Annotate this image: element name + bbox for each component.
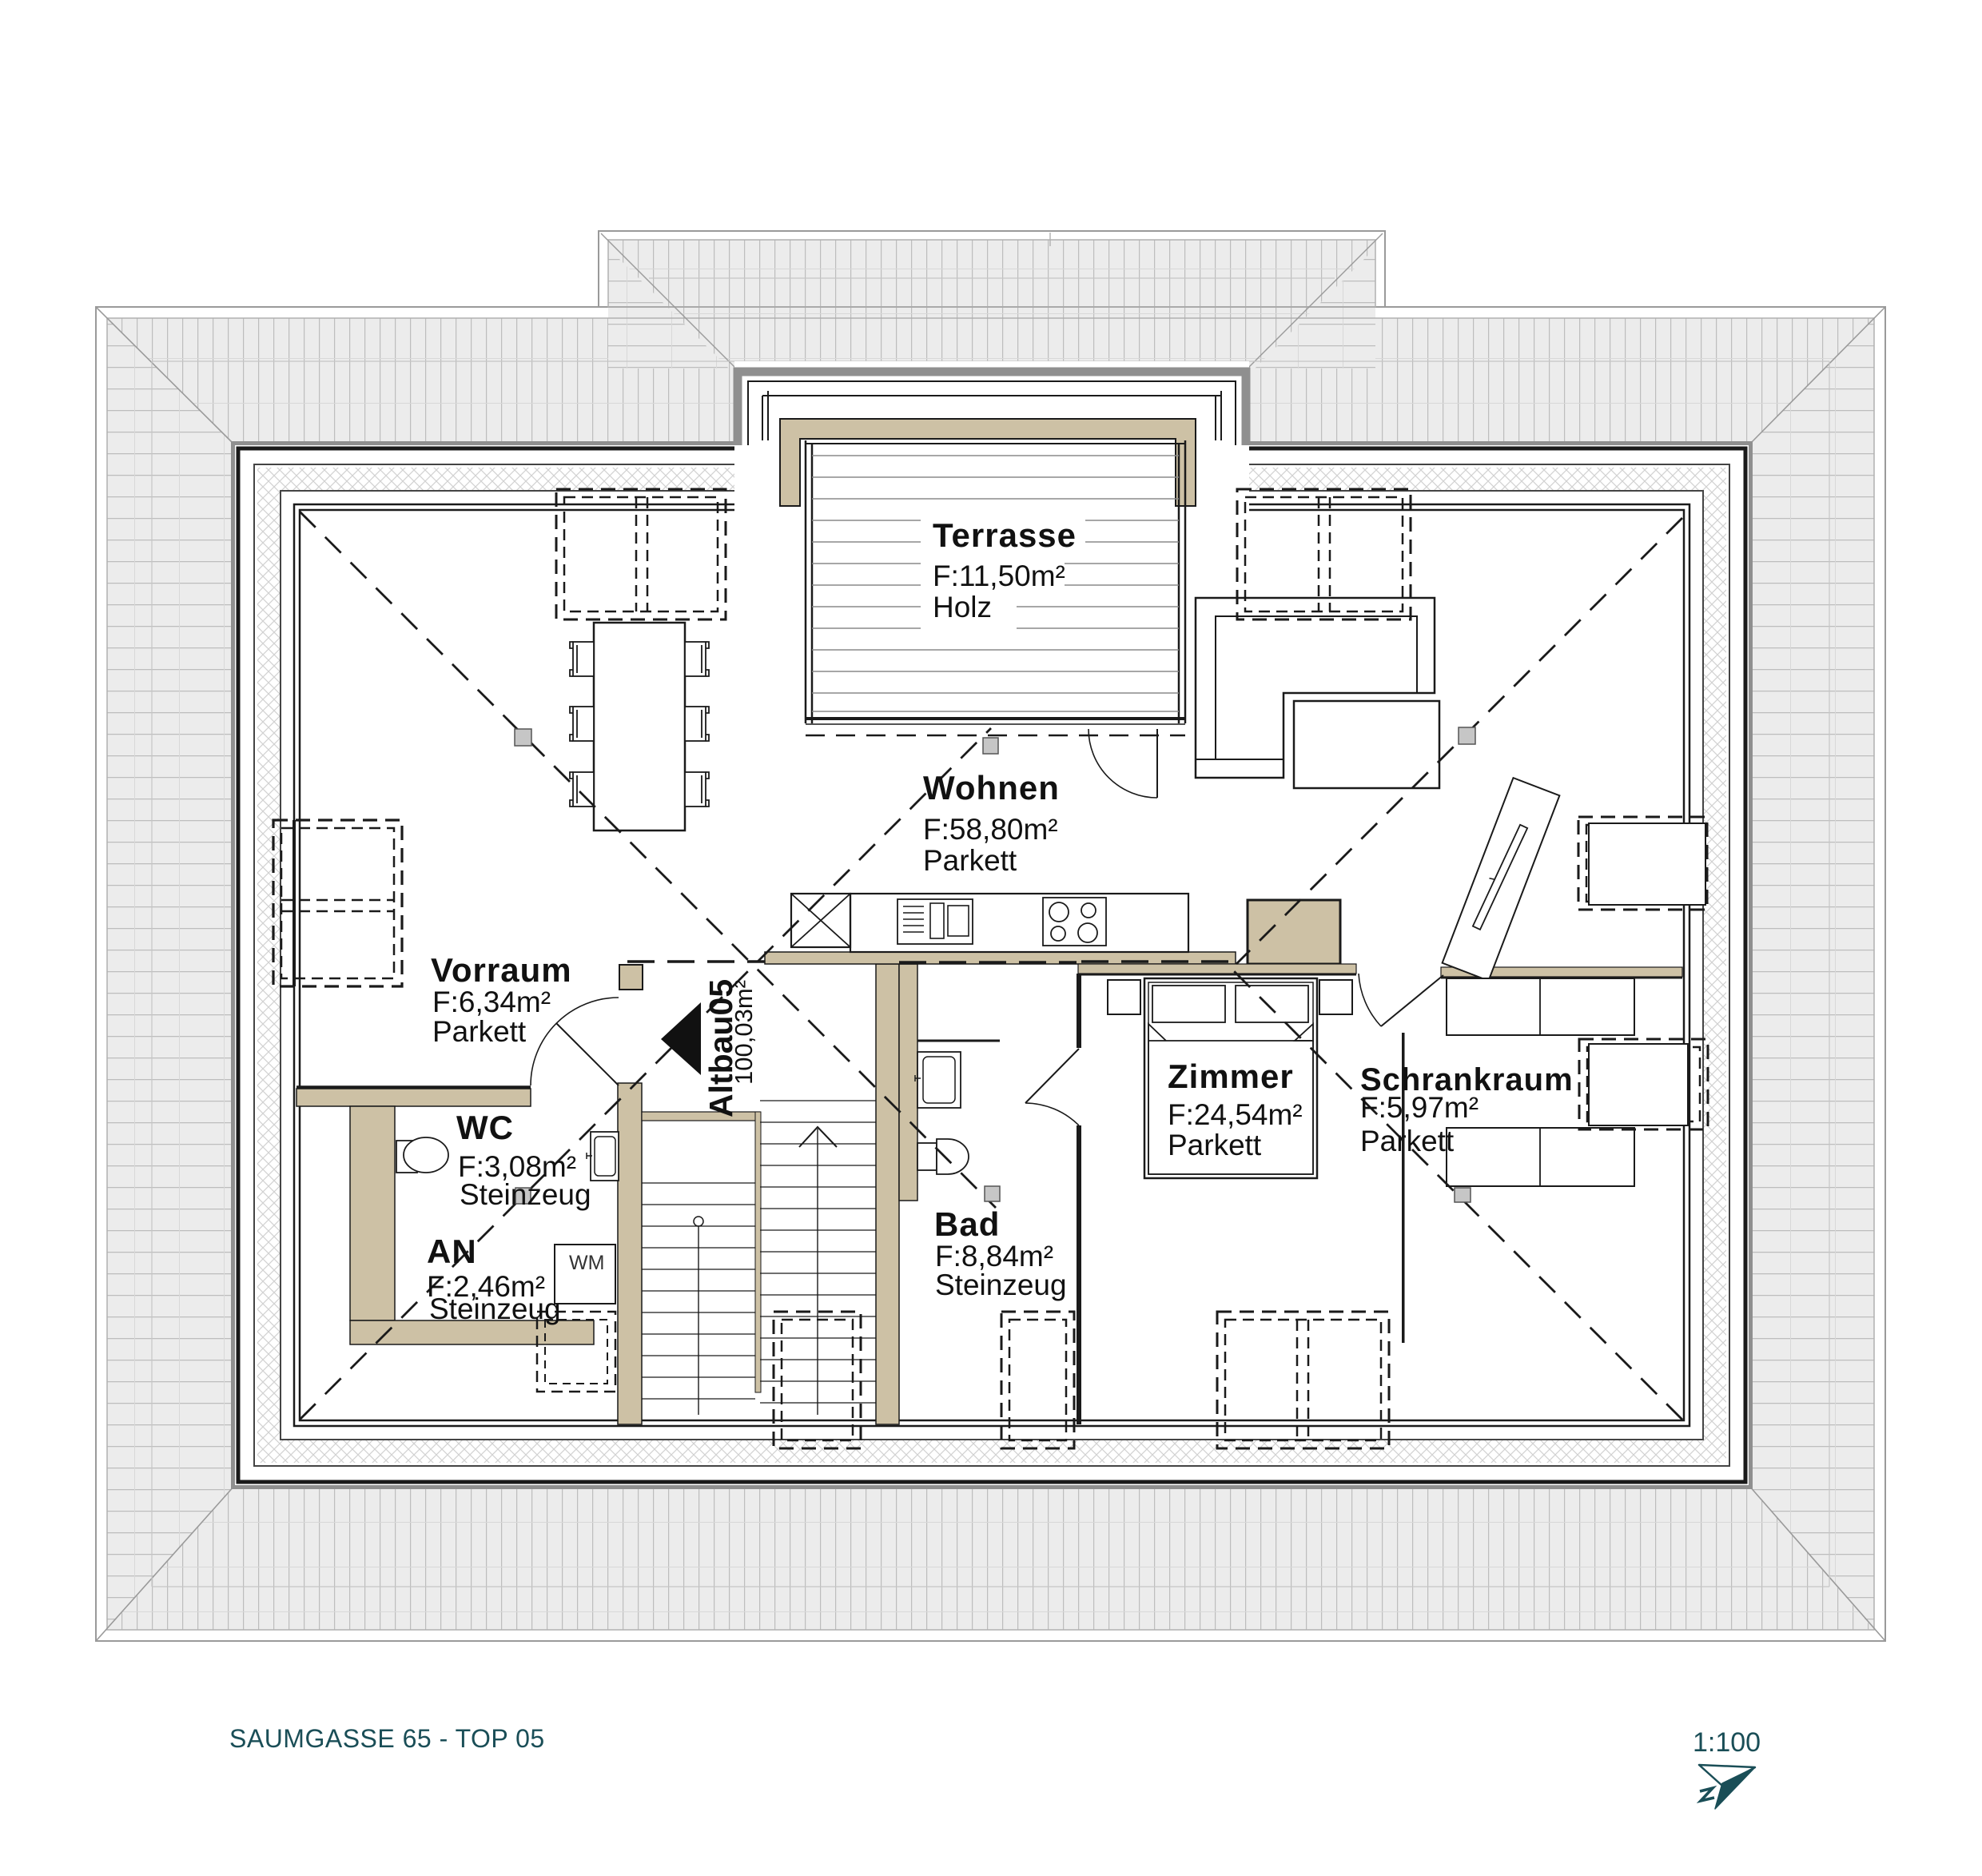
svg-text:Bad: Bad [934, 1205, 1000, 1243]
svg-text:Parkett: Parkett [1360, 1125, 1455, 1157]
svg-text:Terrasse: Terrasse [933, 516, 1077, 554]
svg-text:F:24,54m²: F:24,54m² [1168, 1098, 1303, 1131]
svg-text:AN: AN [427, 1233, 477, 1270]
svg-text:F:58,80m²: F:58,80m² [923, 813, 1058, 846]
svg-text:F:5,97m²: F:5,97m² [1360, 1091, 1479, 1124]
svg-text:Vorraum: Vorraum [431, 951, 572, 989]
svg-text:Zimmer: Zimmer [1168, 1057, 1294, 1095]
svg-text:F:6,34m²: F:6,34m² [432, 986, 551, 1018]
svg-text:SAUMGASSE 65 - TOP 05: SAUMGASSE 65 - TOP 05 [229, 1724, 545, 1753]
svg-text:Parkett: Parkett [923, 844, 1017, 877]
svg-text:WC: WC [456, 1109, 514, 1146]
svg-text:Steinzeug: Steinzeug [935, 1269, 1067, 1301]
svg-text:Parkett: Parkett [432, 1015, 527, 1048]
svg-text:1:100: 1:100 [1693, 1727, 1761, 1758]
svg-text:Steinzeug: Steinzeug [460, 1178, 591, 1211]
svg-text:100,03m²: 100,03m² [730, 980, 758, 1085]
svg-text:Holz: Holz [933, 591, 992, 623]
svg-text:F:8,84m²: F:8,84m² [935, 1240, 1053, 1273]
svg-text:Parkett: Parkett [1168, 1129, 1262, 1161]
svg-text:F:11,50m²: F:11,50m² [933, 560, 1065, 592]
svg-text:Wohnen: Wohnen [923, 769, 1060, 807]
svg-text:Steinzeug: Steinzeug [429, 1292, 561, 1325]
svg-text:WM: WM [569, 1252, 604, 1274]
